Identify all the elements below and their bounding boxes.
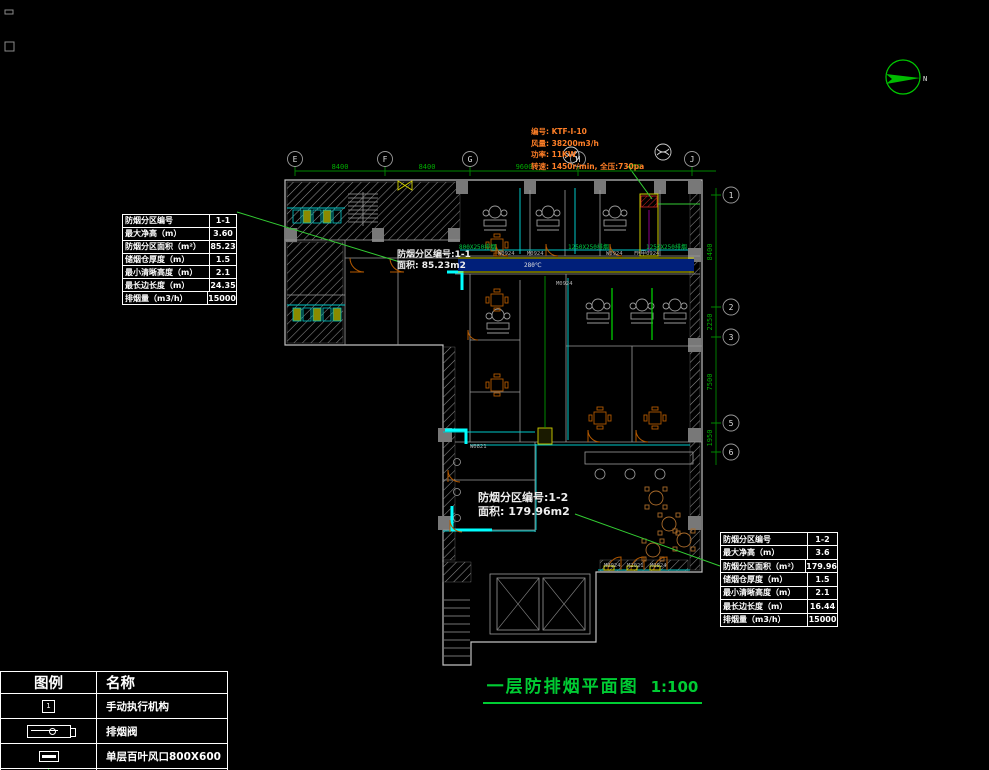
manual-actuator-icon: 1 (42, 700, 55, 713)
spec-value: 2.1 (210, 268, 236, 277)
smoke-exhaust-valve-icon (27, 725, 71, 738)
hatched-walls (287, 182, 700, 582)
doors (350, 244, 667, 570)
spec-value: 3.60 (210, 229, 236, 238)
floor-plan-svg: E F G H J 8400 8400 9600 750 1 2 3 5 6 8… (0, 0, 989, 770)
spec-value: 1-2 (808, 535, 837, 544)
spec-label: 最长边长度（m） (721, 600, 808, 612)
spec-value: 1.5 (210, 255, 236, 264)
fan-spec-line: 编号: KTF-I-10 (531, 126, 644, 138)
wall-opening-label: M0924 (556, 281, 573, 287)
duct-size-label: 1250X250排烟 (646, 243, 687, 251)
dim-top-3: 9600 (516, 163, 533, 171)
table-row: 最小清晰高度（m）2.1 (721, 586, 837, 599)
title-text: 一层防排烟平面图 (487, 677, 639, 697)
legend-header: 图例 名称 (1, 672, 227, 693)
wall-opening-label: W0821 (470, 444, 487, 450)
viewport-corner-marks (5, 10, 14, 51)
spec-label: 储烟仓厚度（m） (123, 254, 210, 266)
grid-bubble-g: G (468, 155, 473, 164)
fan-spec-line: 转速: 1450r/min, 全压:730pa (531, 161, 644, 173)
legend-header-symbol: 图例 (1, 672, 97, 693)
door-label: M0924 (604, 563, 621, 569)
duct-size-label: 1250X250排烟 (568, 243, 609, 251)
table-row: 最大净高（m）3.6 (721, 545, 837, 558)
spec-label: 排烟量（m3/h） (123, 292, 208, 304)
spec-value: 85.23 (210, 242, 236, 251)
table-row: 排烟量（m3/h）15000 (123, 291, 236, 304)
smoke-zone-1-1-spec-table: 防烟分区编号1-1 最大净高（m）3.60 防烟分区面积（m²）85.23 储烟… (122, 214, 237, 305)
north-arrow-label: N (923, 75, 927, 83)
spec-value: 2.1 (808, 588, 837, 597)
north-arrow-pointer (886, 74, 920, 84)
spec-value: 24.35 (210, 281, 236, 290)
table-row: 防烟分区面积（m²）85.23 (123, 240, 236, 253)
spec-value: 179.96 (806, 562, 837, 571)
spec-value: 1-1 (210, 216, 236, 225)
legend-item-name: 排烟阀 (97, 724, 227, 739)
grid-top: E F G H J 8400 8400 9600 750 (288, 152, 717, 177)
cad-drawing-canvas[interactable]: E F G H J 8400 8400 9600 750 1 2 3 5 6 8… (0, 0, 989, 770)
spec-label: 储烟仓厚度（m） (721, 573, 808, 585)
table-row: 最长边长度（m）16.44 (721, 599, 837, 612)
legend-row: 排烟阀 (1, 718, 227, 743)
legend-item-name: 单层百叶风口800X600 (97, 749, 227, 764)
spec-label: 防烟分区编号 (721, 533, 808, 545)
zone-1-1-callout: 防烟分区编号:1-1 面积: 85.23m2 (397, 250, 471, 272)
table-row: 最长边长度（m）24.35 (123, 278, 236, 291)
zone-1-2-callout: 防烟分区编号:1-2 面积: 179.96m2 (478, 491, 570, 519)
dim-right-3: 7500 (706, 374, 714, 391)
zone-id-text: 防烟分区编号:1-2 (478, 491, 570, 505)
dim-top-2: 8400 (419, 163, 436, 171)
wall-opening-label: FM甲0924 (634, 250, 660, 257)
fan-spec-line: 风量: 38200m3/h (531, 138, 644, 150)
smoke-zone-1-2-spec-table: 防烟分区编号1-2 最大净高（m）3.6 防烟分区面积（m²）179.96 储烟… (720, 532, 838, 627)
table-row: 储烟仓厚度（m）1.5 (721, 572, 837, 585)
dim-right-1: 8400 (706, 244, 714, 261)
spec-value: 3.6 (808, 548, 837, 557)
grid-bubble-2: 2 (729, 303, 734, 312)
legend-item-name: 手动执行机构 (97, 699, 227, 714)
grid-bubble-j: J (690, 155, 695, 164)
table-row: 最大净高（m）3.60 (123, 227, 236, 240)
dim-right-2: 2250 (706, 314, 714, 331)
spec-label: 防烟分区编号 (123, 215, 210, 227)
table-row: 防烟分区编号1-2 (721, 533, 837, 545)
wall-opening-label: W0924 (498, 251, 515, 257)
dim-top-1: 8400 (332, 163, 349, 171)
table-row: 排烟量（m3/h）15000 (721, 613, 837, 626)
damper-temp-label: 280℃ (524, 262, 542, 269)
door-label: M0924 (650, 563, 667, 569)
wall-opening-label: W0924 (606, 251, 623, 257)
grid-right: 1 2 3 5 6 8400 2250 7500 1950 (706, 187, 739, 465)
spec-label: 最大净高（m） (721, 546, 808, 558)
wall-opening-label: M0924 (527, 251, 544, 257)
plan-text-labels: 800X250排烟 1250X250排烟 1250X250排烟 280℃ W09… (459, 243, 687, 569)
corridor-smoke-duct (458, 258, 694, 272)
door-label: M2021 (627, 563, 644, 569)
grid-bubble-e: E (293, 155, 298, 164)
table-row: 储烟仓厚度（m）1.5 (123, 253, 236, 266)
grid-bubble-f: F (383, 155, 388, 164)
table-row: 防烟分区编号1-1 (123, 215, 236, 227)
legend-table: 图例 名称 1 手动执行机构 排烟阀 单层百叶风口800X600 280℃防火阀 (0, 671, 228, 770)
zone-area-text: 面积: 179.96m2 (478, 505, 570, 519)
spec-label: 防烟分区面积（m²） (721, 560, 806, 572)
room-green-lines (612, 288, 652, 340)
spec-value: 16.44 (808, 602, 837, 611)
spec-label: 最小清晰高度（m） (721, 587, 808, 599)
north-arrow: N (886, 60, 927, 94)
zone-area-text: 面积: 85.23m2 (397, 261, 471, 272)
spec-label: 防烟分区面积（m²） (123, 241, 210, 253)
spec-label: 排烟量（m3/h） (721, 614, 808, 626)
legend-header-name: 名称 (97, 672, 227, 693)
louver-grille-icon (39, 751, 59, 762)
spec-value: 1.5 (808, 575, 837, 584)
grid-bubble-5: 5 (729, 419, 734, 428)
grid-bubble-6: 6 (729, 448, 734, 457)
fan-spec-line: 功率: 11KW (531, 149, 644, 161)
spec-label: 最大净高（m） (123, 228, 210, 240)
table-row: 防烟分区面积（m²）179.96 (721, 559, 837, 572)
dim-right-4: 1950 (706, 430, 714, 447)
spec-label: 最小清晰高度（m） (123, 266, 210, 278)
spec-value: 15000 (208, 294, 236, 303)
title-scale: 1:100 (651, 678, 699, 696)
zone-id-text: 防烟分区编号:1-1 (397, 250, 471, 261)
spec-label: 最长边长度（m） (123, 279, 210, 291)
legend-row: 单层百叶风口800X600 (1, 743, 227, 768)
table-row: 最小清晰高度（m）2.1 (123, 265, 236, 278)
spec-value: 15000 (808, 615, 837, 624)
legend-row: 1 手动执行机构 (1, 693, 227, 718)
drawing-title: 一层防排烟平面图1:100 (483, 672, 702, 704)
grid-bubble-1: 1 (729, 191, 734, 200)
fan-spec-note: 编号: KTF-I-10 风量: 38200m3/h 功率: 11KW 转速: … (531, 126, 644, 172)
grid-bubble-3: 3 (729, 333, 734, 342)
